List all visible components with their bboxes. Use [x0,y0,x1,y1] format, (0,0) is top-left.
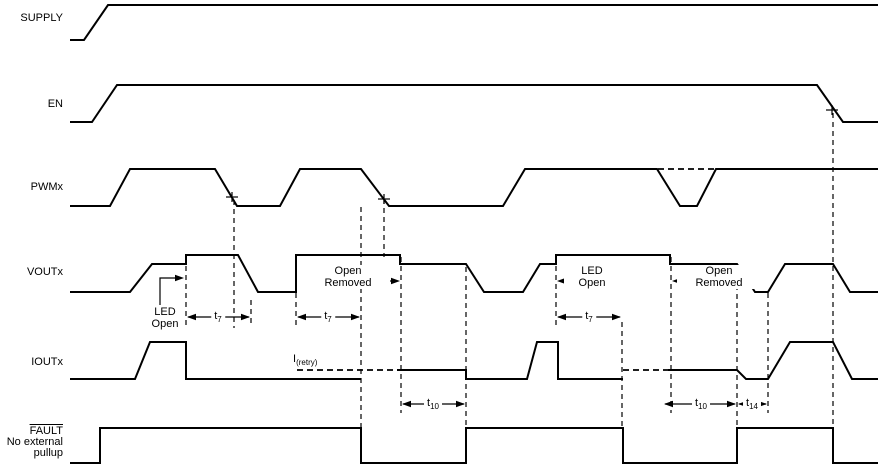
t7-sub: 7 [217,315,221,324]
dim-arrowhead-right-3 [456,401,465,407]
dim-arrowhead-right-0 [241,314,250,320]
ioutx-waveform-2 [397,342,623,379]
signal-label-voutx: VOUTx [0,267,63,278]
annotation-open-removed-1: Open Removed [306,265,390,289]
annotation-text: Open [579,277,606,289]
ioutx-waveform-3 [668,342,878,379]
timing-label-t7-2: t7 [321,310,335,326]
annotation-text: Removed [324,277,371,289]
en-waveform [70,85,878,122]
annotation-text: Open [152,318,179,330]
timing-label-t10-1: t10 [424,397,442,413]
timing-label-t14: t14 [743,397,761,413]
t10-sub: 10 [698,402,707,411]
signal-label-fault: FAULT No external pullup [0,426,63,459]
dim-arrowhead-right-2 [612,314,621,320]
t7-sub: 7 [588,315,592,324]
open-removed-1-arrow-head [391,278,400,284]
t14-sub: 14 [749,402,758,411]
annotation-led-open-1: LED Open [137,306,193,330]
dim-arrowhead-right-4 [727,401,736,407]
annotation-text: LED [581,265,602,277]
i-retry-label: I(retry) [293,353,317,369]
signal-label-ioutx: IOUTx [0,357,63,368]
annotation-text: Removed [695,277,742,289]
dim-arrowhead-right-1 [351,314,360,320]
annotation-open-removed-2: Open Removed [677,265,761,289]
timing-label-t7-3: t7 [582,310,596,326]
fault-note-line2: pullup [34,447,63,459]
supply-waveform [70,5,878,40]
i-retry-sub: (retry) [296,358,317,367]
led-open-1-arrow [160,278,180,305]
signal-label-pwmx: PWMx [0,182,63,193]
signal-label-supply: SUPPLY [0,13,63,24]
t7-sub: 7 [327,315,331,324]
signal-label-en: EN [0,99,63,110]
timing-label-t10-2: t10 [692,397,710,413]
dim-arrowhead-left-2 [557,314,566,320]
dim-arrowhead-left-4 [664,401,673,407]
t10-sub: 10 [430,402,439,411]
annotation-text: Open [335,265,362,277]
timing-label-t7-1: t7 [211,310,225,326]
pwmx-waveform [70,169,878,206]
timing-diagram: SUPPLY EN PWMx VOUTx IOUTx FAULT No exte… [0,0,878,469]
annotation-text: LED [154,306,175,318]
annotation-led-open-2: LED Open [564,265,620,289]
dim-arrowhead-left-1 [297,314,306,320]
led-open-1-arrow-head [175,275,184,281]
annotation-text: Open [706,265,733,277]
fault-waveform [70,428,878,463]
dim-arrowhead-left-3 [402,401,411,407]
